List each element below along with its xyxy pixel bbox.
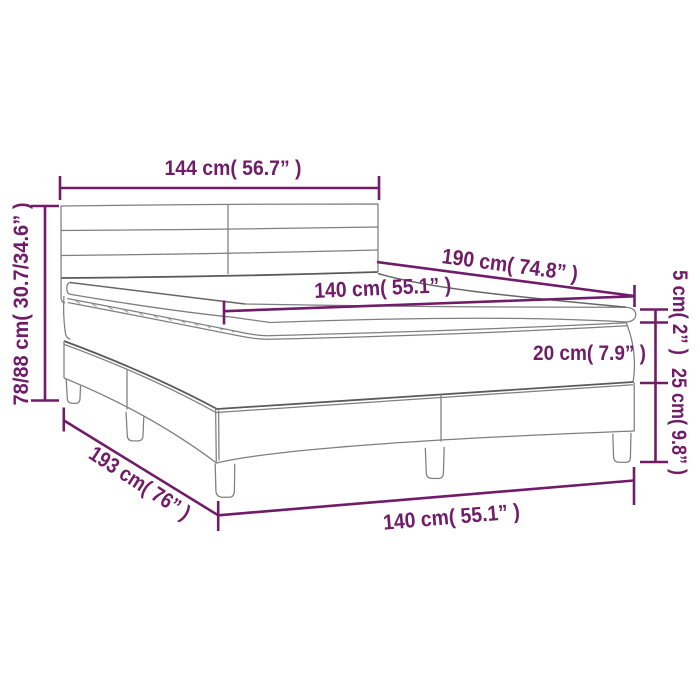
svg-text:144 cm( 56.7” ): 144 cm( 56.7” ) (165, 156, 302, 180)
svg-text:25 cm( 9.8” ): 25 cm( 9.8” ) (667, 368, 691, 475)
svg-text:20 cm( 7.9” ): 20 cm( 7.9” ) (533, 341, 646, 365)
svg-text:5 cm( 2” ): 5 cm( 2” ) (668, 270, 692, 355)
svg-text:78/88 cm( 30.7/34.6” ): 78/88 cm( 30.7/34.6” ) (9, 203, 33, 406)
